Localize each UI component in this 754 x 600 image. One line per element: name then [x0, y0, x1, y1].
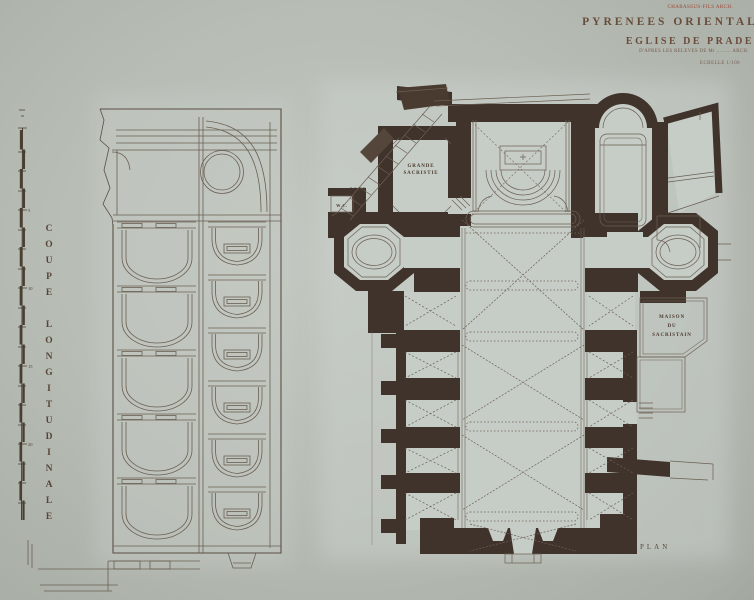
- title-block: CHABASSUS-FILS ARCH. PYRENEES ORIENTALES…: [582, 5, 754, 66]
- section-caption: COUPE LONGITUDINALE: [44, 224, 54, 494]
- scale-tick-20: 20: [28, 442, 33, 447]
- architectural-drawing-svg: 5 10 15 20: [0, 0, 754, 600]
- main-door-opening: [510, 528, 536, 554]
- scale-bar: 5 10 15 20: [18, 110, 33, 520]
- maison-label-line2: DU: [667, 324, 676, 329]
- plan-caption: PLAN: [640, 543, 670, 551]
- cour-label: COUR: [349, 188, 367, 193]
- sheet-title: EGLISE DE PRADES: [626, 36, 754, 47]
- scale-tick-5: 5: [28, 208, 31, 213]
- grande-sacristie-label-line2: SACRISTIE: [403, 171, 438, 176]
- scale-tick-10: 10: [28, 286, 33, 291]
- maison-label-line1: MAISON: [659, 315, 685, 320]
- scale-tick-15: 15: [28, 364, 33, 369]
- wc-label: W.C.: [336, 203, 348, 208]
- grande-sacristie-label-line1: GRANDE: [407, 164, 434, 169]
- drawing-sheet: 5 10 15 20: [0, 0, 754, 600]
- scale-note: ECHELLE 1/100: [700, 61, 740, 66]
- sheet-subtitle: D'APRES LES RELEVES DE Mr ......... ARCH…: [639, 49, 749, 54]
- maison-label-line3: SACRISTAIN: [652, 333, 691, 338]
- region-title: PYRENEES ORIENTALES: [582, 16, 754, 28]
- left-octagon-room: [344, 224, 404, 280]
- red-stamp-text: CHABASSUS-FILS ARCH.: [667, 5, 733, 10]
